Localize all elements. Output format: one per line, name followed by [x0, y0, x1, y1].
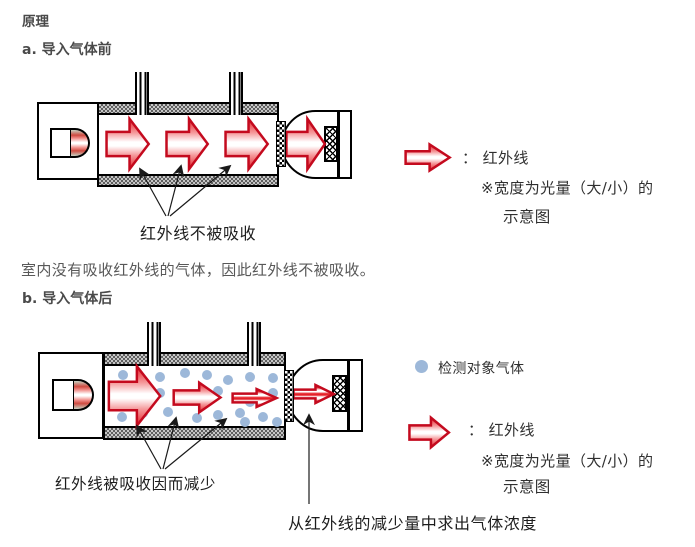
legend-ir-note-line1-a: ※宽度为光量（大/小）的	[481, 177, 653, 198]
legend-gas-molecule-icon	[415, 360, 428, 373]
gas-molecule-dot	[245, 372, 255, 382]
ir-arrow-small-icon	[231, 388, 279, 408]
annotation-label-concentration: 从红外线的减少量中求出气体浓度	[288, 510, 537, 534]
detector-housing-divider-b	[347, 361, 350, 430]
page-title: 原理	[22, 10, 49, 30]
legend-ir-label-a: ： 红外线	[462, 147, 529, 168]
legend-ir-note-line1-b: ※宽度为光量（大/小）的	[481, 450, 653, 471]
legend-ir-arrow-icon-b	[408, 416, 451, 449]
ir-lamp-base-icon-a	[50, 128, 72, 158]
paragraph-text: 室内没有吸收红外线的气体，因此红外线不被吸收。	[21, 259, 375, 280]
gas-molecule-dot	[272, 417, 282, 427]
section-a-heading: a. 导入气体前	[22, 39, 112, 59]
gas-molecule-dot	[180, 368, 190, 378]
gas-inlet-pipe-a-right	[229, 72, 243, 115]
legend-ir-note-line2-a: 示意图	[503, 205, 551, 227]
legend-ir-arrow-icon-a	[404, 143, 452, 172]
gas-molecule-dot	[223, 375, 233, 385]
gas-molecule-dot	[202, 370, 212, 380]
gas-inlet-pipe-a-left	[135, 72, 149, 115]
gas-molecule-dot	[268, 373, 278, 383]
gas-molecule-dot	[240, 417, 250, 427]
annotation-label-not-absorbed: 红外线不被吸收	[140, 220, 256, 244]
ndir-principle-diagram-page: 原理 a. 导入气体前 室内没有吸收红外线的气体，因此红外线不被吸收。 b. 导…	[0, 0, 695, 547]
gas-inlet-pipe-b-right	[247, 322, 261, 366]
annotation-label-absorbed: 红外线被吸收因而减少	[55, 472, 216, 494]
gas-inlet-pipe-b-left	[147, 322, 161, 366]
ir-arrow-medium-icon	[172, 381, 223, 414]
optical-window-a	[276, 121, 286, 167]
legend-gas-label: 检测对象气体	[438, 358, 524, 378]
tube-wall-bottom-a	[99, 174, 277, 185]
ir-arrow-icon	[285, 116, 327, 172]
optical-window-b	[284, 370, 294, 422]
legend-ir-note-line2-b: 示意图	[503, 475, 551, 497]
gas-molecule-dot	[258, 412, 268, 422]
ir-arrow-large-icon	[107, 363, 163, 429]
section-b-heading: b. 导入气体后	[22, 288, 112, 308]
tube-wall-top-a	[99, 104, 277, 115]
ir-arrow-icon	[224, 116, 270, 172]
gas-molecule-dot	[192, 413, 202, 423]
ir-lamp-base-icon-b	[52, 379, 75, 411]
legend-ir-label-b: ： 红外线	[468, 419, 535, 440]
ir-arrow-icon	[165, 116, 210, 172]
ir-arrow-icon	[105, 116, 151, 172]
ir-arrow-small-icon	[292, 384, 336, 404]
